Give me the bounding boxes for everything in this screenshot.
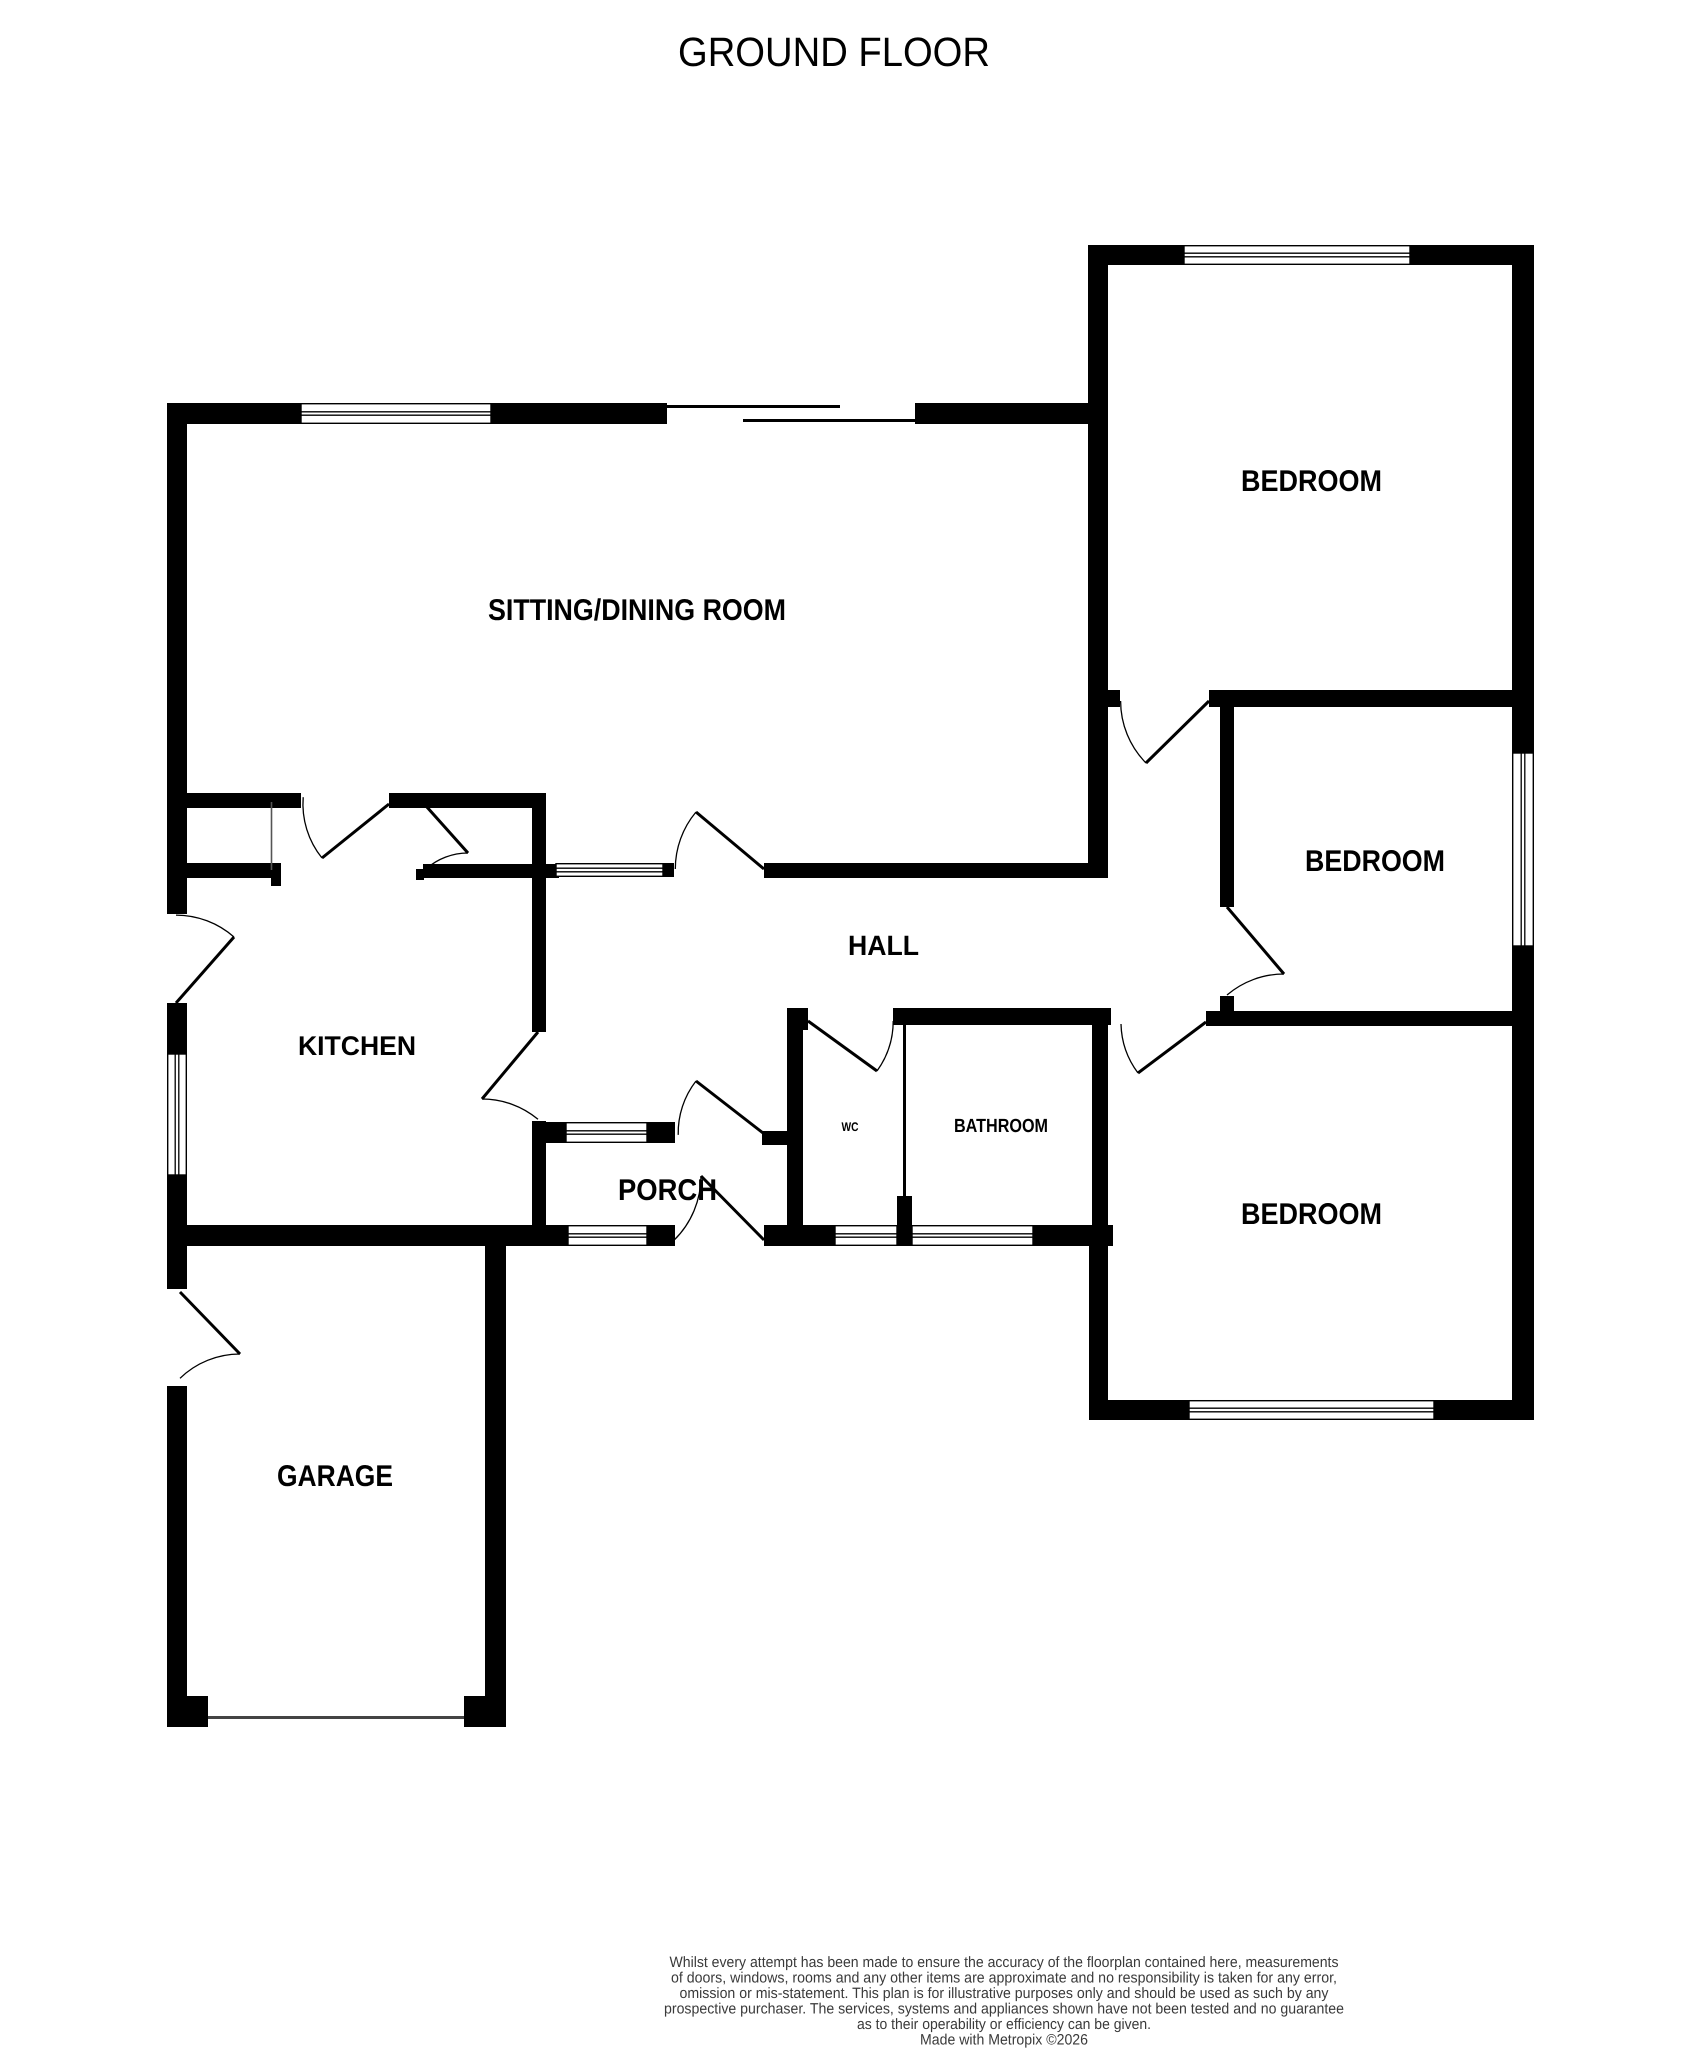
- svg-text:GROUND FLOOR: GROUND FLOOR: [678, 29, 990, 75]
- svg-text:BATHROOM: BATHROOM: [954, 1116, 1048, 1137]
- svg-text:Made with Metropix ©2026: Made with Metropix ©2026: [920, 2032, 1088, 2048]
- svg-text:omission or mis-statement. Thi: omission or mis-statement. This plan is …: [680, 1985, 1329, 2002]
- svg-text:PORCH: PORCH: [618, 1174, 717, 1207]
- svg-text:prospective purchaser. The ser: prospective purchaser. The services, sys…: [664, 2001, 1344, 2018]
- svg-text:HALL: HALL: [848, 930, 919, 961]
- svg-text:as to their operability or eff: as to their operability or efficiency ca…: [857, 2016, 1151, 2033]
- svg-text:GARAGE: GARAGE: [277, 1460, 393, 1493]
- svg-text:of doors, windows, rooms and a: of doors, windows, rooms and any other i…: [671, 1970, 1337, 1987]
- svg-text:BEDROOM: BEDROOM: [1241, 1198, 1382, 1231]
- svg-text:BEDROOM: BEDROOM: [1241, 465, 1382, 498]
- svg-text:BEDROOM: BEDROOM: [1305, 845, 1445, 878]
- svg-text:WC: WC: [842, 1120, 859, 1134]
- svg-text:SITTING/DINING ROOM: SITTING/DINING ROOM: [488, 594, 786, 627]
- svg-text:KITCHEN: KITCHEN: [298, 1031, 416, 1061]
- svg-text:Whilst every attempt has been: Whilst every attempt has been made to en…: [670, 1954, 1339, 1971]
